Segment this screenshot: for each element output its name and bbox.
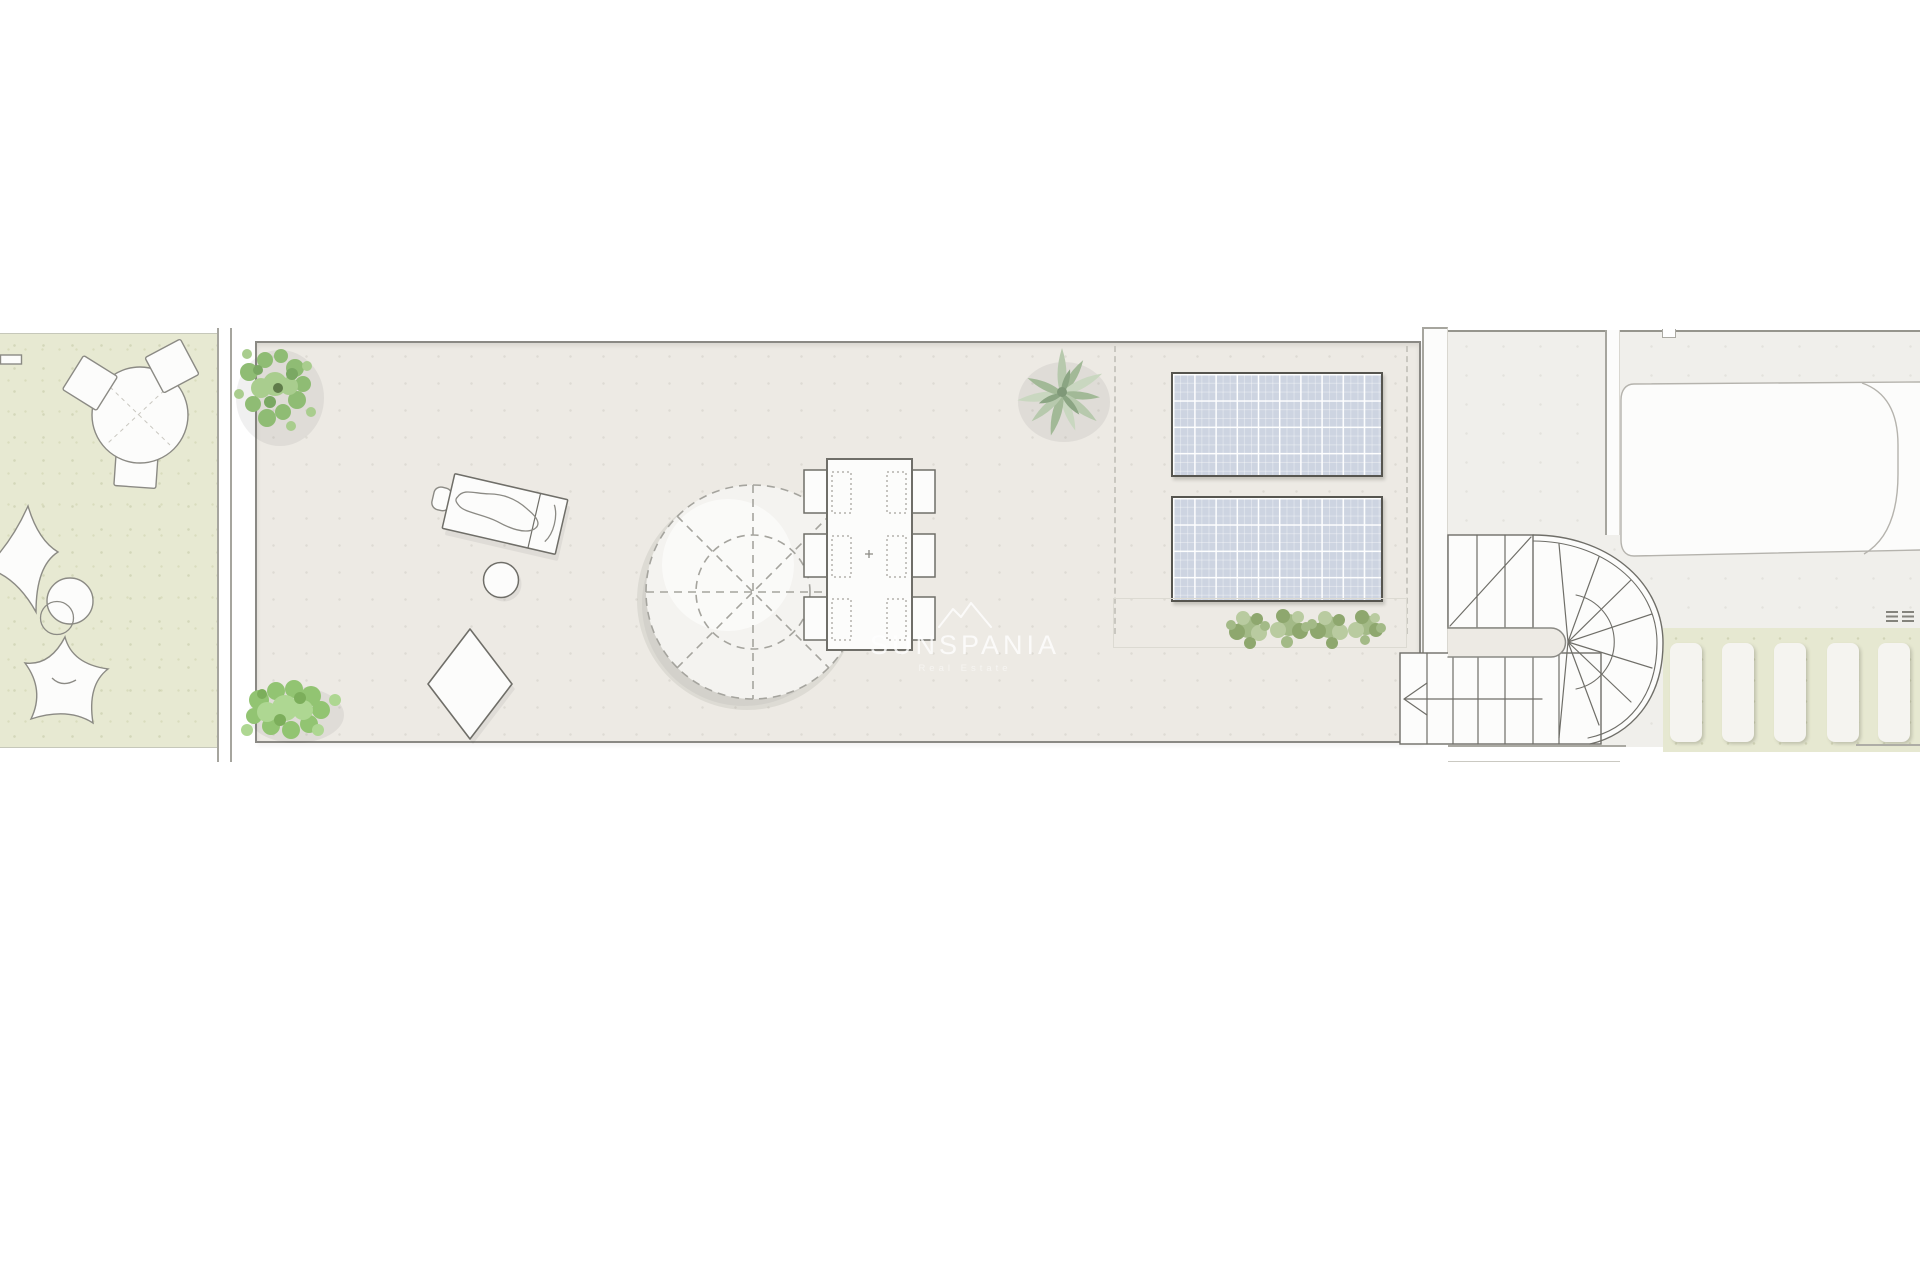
watermark-tagline: Real Estate (860, 663, 1070, 674)
pool (1621, 382, 1920, 556)
side-table (484, 563, 522, 602)
bean-bag-cushion (25, 637, 108, 723)
watermark-brand: SUNSPANIA (860, 630, 1070, 661)
dining-chair (804, 534, 828, 577)
dining-chair (911, 470, 935, 513)
corner-bush-top (234, 349, 324, 446)
corner-bush-bottom (241, 680, 344, 743)
sun-lounger (425, 470, 571, 561)
dining-chair (804, 470, 828, 513)
vent-hatch-marks (1886, 611, 1914, 622)
mountain-logo-icon (937, 602, 993, 629)
floor-plan-canvas: SUNSPANIA Real Estate (0, 0, 1920, 1280)
planter-tag (1, 355, 22, 364)
staircase (1400, 535, 1663, 744)
agave-plant (1017, 348, 1110, 442)
watermark: SUNSPANIA Real Estate (860, 602, 1070, 674)
pouf (47, 578, 93, 624)
floor-cushion (428, 629, 515, 744)
dining-chair (911, 534, 935, 577)
stair-handrail-gap (1448, 628, 1566, 657)
dining-chair (804, 597, 828, 640)
shrub-row (1226, 609, 1386, 649)
garden-furniture (0, 339, 199, 723)
